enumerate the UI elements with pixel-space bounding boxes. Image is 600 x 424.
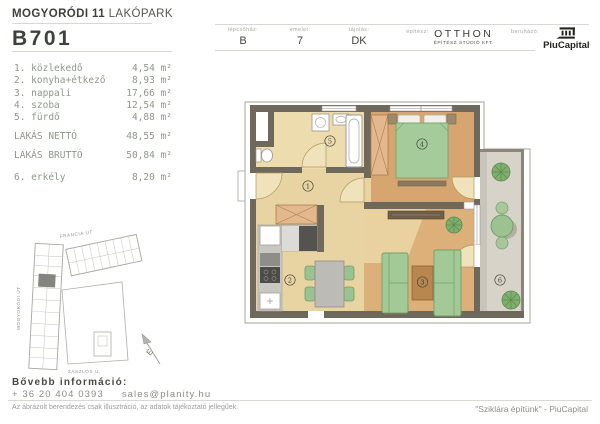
tall-cabinet-icon [299, 226, 317, 251]
svg-text:2: 2 [288, 277, 292, 285]
field-staircase: lépcsőház: B [215, 25, 271, 51]
architect-name: OTTHON [434, 28, 494, 40]
bed-icon [396, 123, 448, 178]
room-area: 12,54 m² [126, 100, 172, 112]
bathtub-icon [346, 115, 362, 167]
room-label: 1. közlekedő [14, 63, 83, 75]
highlighted-unit [38, 274, 56, 288]
field-orientation-value: DK [329, 35, 389, 47]
column-logo-icon [553, 27, 579, 39]
balcony-area: 8,20 m² [132, 172, 172, 184]
field-staircase-label: lépcsőház: [215, 27, 271, 33]
net-area: 48,55 m² [126, 131, 172, 143]
field-floor-value: 7 [271, 35, 329, 47]
north-label: É [145, 347, 155, 357]
north-arrow: É [142, 334, 160, 364]
contact-heading: Bővebb információ: [12, 377, 128, 388]
field-developer: beruházó: PiuCapital [511, 25, 589, 51]
developer-logo: PiuCapital [543, 27, 589, 51]
architect-subname: ÉPÍTÉSZ STÚDIÓ KFT. [434, 41, 494, 46]
balcony-chair-icon [496, 237, 508, 249]
dining-chair-icon [305, 266, 315, 280]
contact-email: sales@planity.hu [122, 389, 211, 400]
floorplan-drawing: 1 2 3 4 5 6 [230, 85, 550, 385]
unit-id: B701 [12, 27, 72, 51]
room-area: 4,88 m² [132, 112, 172, 124]
site-building-left [29, 243, 64, 369]
room-area: 17,66 m² [126, 88, 172, 100]
room-label: 2. konyha+étkező [14, 75, 106, 87]
bedroom [371, 114, 456, 186]
room-area: 8,93 m² [132, 75, 172, 87]
title-divider [12, 23, 152, 24]
site-building-top [66, 234, 142, 275]
street-label-bottom: ZÁSZLÓS U. [68, 368, 101, 374]
field-developer-label: beruházó: [511, 29, 539, 51]
developer-name: PiuCapital [543, 40, 589, 51]
site-courtyard [62, 282, 128, 364]
room-label: 5. fürdő [14, 112, 60, 124]
footer-quote: "Sziklára építünk" - PiuCapital [475, 404, 588, 414]
room-row-3: 3. nappali17,66 m² [14, 88, 172, 100]
disclaimer-text: Az ábrázolt berendezés csak illusztráció… [12, 404, 238, 411]
field-floor: emelet: 7 [271, 25, 329, 51]
balcony-label: 6. erkély [14, 172, 65, 184]
footer-divider [8, 400, 592, 401]
dining-chair-icon [344, 266, 354, 280]
washing-machine-icon [312, 114, 329, 131]
project-title: MOGYORÓDI 11 LAKÓPARK [12, 8, 173, 20]
project-name-bold: MOGYORÓDI 11 [12, 8, 105, 20]
field-staircase-value: B [215, 35, 271, 47]
svg-text:5: 5 [328, 138, 332, 146]
room-row-5: 5. fürdő4,88 m² [14, 112, 172, 124]
room-row-4: 4. szoba12,54 m² [14, 100, 172, 112]
fridge-icon [260, 226, 280, 245]
contact-row: + 36 20 404 0393sales@planity.hu [12, 389, 229, 400]
toilet-icon [256, 149, 261, 162]
field-architect-label: építész: [406, 29, 428, 51]
svg-text:1: 1 [306, 183, 310, 191]
project-name-light: LAKÓPARK [109, 8, 173, 20]
field-floor-label: emelet: [271, 27, 329, 33]
room-area: 4,54 m² [132, 63, 172, 75]
plant-icon [502, 291, 520, 309]
gross-area: 50,84 m² [126, 150, 172, 162]
nightstand-icon [447, 114, 456, 124]
gross-label: LAKÁS BRUTTÓ [14, 150, 83, 162]
street-label-left: MOGYORÓDI ÚT [15, 286, 21, 330]
street-label-top: FRANCIA ÚT [59, 228, 93, 239]
balcony-chair-icon [496, 202, 508, 214]
balcony-table-icon [491, 215, 513, 237]
dining-chair-icon [305, 287, 315, 301]
room-label: 3. nappali [14, 88, 71, 100]
header-fields: lépcsőház: B emelet: 7 tájolás: DK építé… [215, 24, 589, 51]
floorplan-sheet: MOGYORÓDI 11 LAKÓPARK B701 lépcsőház: B … [0, 0, 600, 424]
unit-divider [12, 51, 172, 52]
room-row-2: 2. konyha+étkező8,93 m² [14, 75, 172, 87]
field-architect: építész: OTTHON ÉPÍTÉSZ STÚDIÓ KFT. [389, 25, 511, 51]
entry-recess-outline [238, 171, 245, 201]
plant-icon [492, 163, 510, 181]
hall-wardrobe [276, 205, 317, 224]
gross-area-row: LAKÁS BRUTTÓ50,84 m² [14, 150, 172, 162]
stove-icon [260, 267, 280, 283]
svg-text:4: 4 [420, 141, 424, 149]
fields-divider [215, 50, 535, 51]
bed-bench-icon [398, 181, 446, 186]
svg-text:3: 3 [420, 279, 424, 287]
field-orientation: tájolás: DK [329, 25, 389, 51]
room-list: 1. közlekedő4,54 m² 2. konyha+étkező8,93… [14, 63, 172, 184]
net-label: LAKÁS NETTÓ [14, 131, 77, 143]
nightstand-icon [388, 114, 397, 124]
dining-chair-icon [344, 287, 354, 301]
site-plan: FRANCIA ÚT MOGYORÓDI ÚT ZÁSZLÓS U. [10, 212, 170, 376]
field-orientation-label: tájolás: [329, 27, 389, 33]
balcony-row: 6. erkély8,20 m² [14, 172, 172, 184]
svg-text:6: 6 [498, 277, 502, 285]
room-label: 4. szoba [14, 100, 60, 112]
balcony-railing [480, 149, 524, 152]
room-row-1: 1. közlekedő4,54 m² [14, 63, 172, 75]
plant-icon [446, 217, 462, 233]
net-area-row: LAKÁS NETTÓ48,55 m² [14, 131, 172, 143]
contact-phone: + 36 20 404 0393 [12, 389, 104, 400]
dining-table-icon [315, 261, 344, 307]
